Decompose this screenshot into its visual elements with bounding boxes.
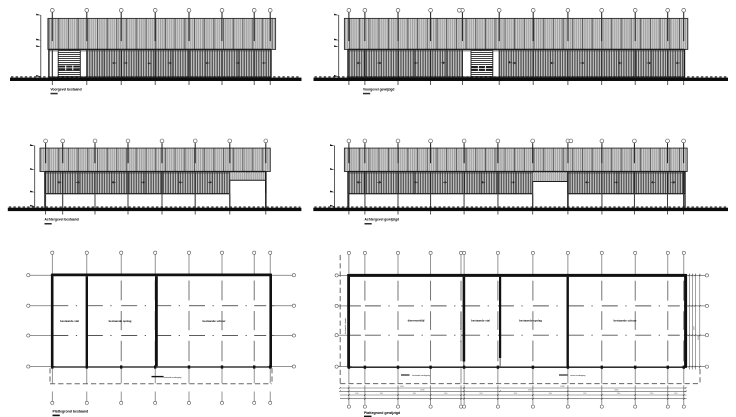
- svg-text:Achtergevel gewijzigd: Achtergevel gewijzigd: [365, 218, 400, 222]
- svg-text:21820: 21820: [560, 386, 565, 388]
- svg-text:Plattegrond gewijzigd: Plattegrond gewijzigd: [364, 411, 400, 415]
- svg-text:11800: 11800: [614, 390, 619, 392]
- svg-text:14820: 14820: [698, 335, 700, 340]
- svg-text:11580: 11580: [420, 390, 425, 392]
- svg-text:5000: 5000: [400, 386, 404, 388]
- svg-text:Plattegrond bestaand: Plattegrond bestaand: [53, 409, 89, 413]
- svg-text:Achtergevel bestaand: Achtergevel bestaand: [45, 218, 79, 222]
- svg-text:9140: 9140: [694, 326, 696, 330]
- svg-text:Voorgevel bestaand: Voorgevel bestaand: [51, 88, 82, 92]
- svg-text:6780: 6780: [528, 390, 532, 392]
- svg-text:Voorgevel gewijzigd: Voorgevel gewijzigd: [363, 88, 394, 92]
